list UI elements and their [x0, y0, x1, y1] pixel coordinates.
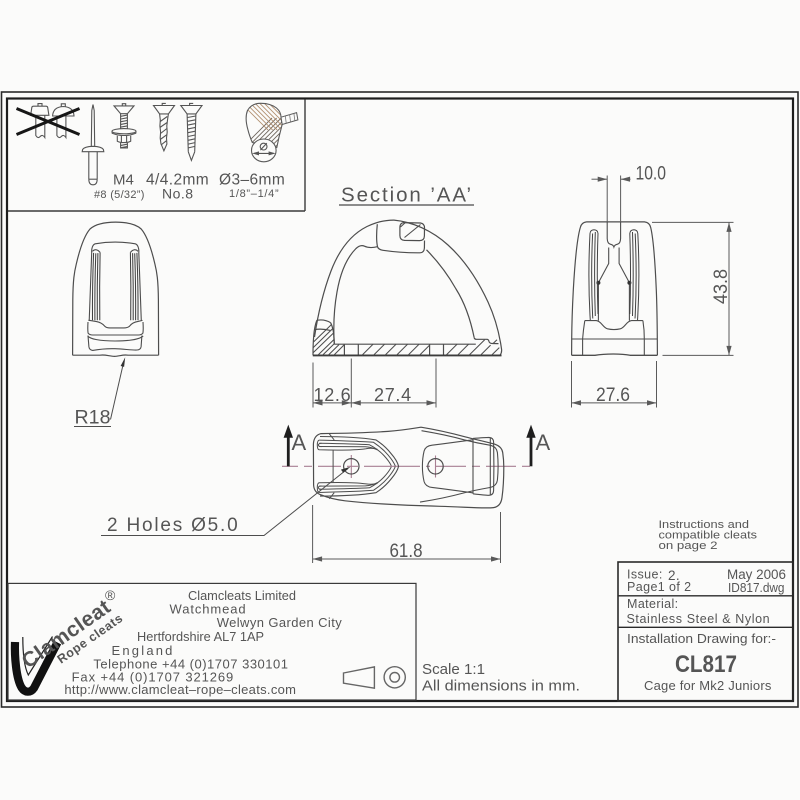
svg-text:M4: M4: [113, 172, 134, 189]
svg-text:ID817.dwg: ID817.dwg: [728, 581, 785, 595]
svg-text:Ø3–6mm: Ø3–6mm: [219, 172, 285, 189]
svg-text:England: England: [112, 643, 175, 658]
svg-text:27.6: 27.6: [596, 385, 630, 406]
svg-text:A: A: [292, 430, 307, 455]
svg-text:R18: R18: [75, 408, 111, 429]
svg-text:May 2006: May 2006: [727, 567, 786, 582]
svg-text:12.6: 12.6: [314, 385, 352, 405]
svg-text:#8 (5/32”): #8 (5/32”): [94, 189, 145, 201]
svg-text:Material:: Material:: [627, 597, 679, 611]
svg-text:Cage for Mk2 Juniors: Cage for Mk2 Juniors: [644, 678, 772, 693]
svg-text:Hertfordshire AL7 1AP: Hertfordshire AL7 1AP: [137, 629, 264, 644]
svg-text:®: ®: [105, 587, 116, 603]
svg-text:http://www.clamcleat–rope–clea: http://www.clamcleat–rope–cleats.com: [64, 682, 296, 697]
svg-text:No.8: No.8: [162, 186, 194, 202]
svg-text:Section ’AA’: Section ’AA’: [341, 184, 471, 207]
svg-text:Scale 1:1: Scale 1:1: [422, 662, 485, 678]
svg-text:Installation Drawing for:-: Installation Drawing for:-: [627, 632, 776, 646]
svg-text:2 Holes Ø5.0: 2 Holes Ø5.0: [107, 515, 240, 536]
svg-text:All dimensions in mm.: All dimensions in mm.: [422, 678, 580, 694]
svg-text:10.0: 10.0: [636, 164, 667, 185]
svg-text:Stainless Steel & Nylon: Stainless Steel & Nylon: [627, 612, 771, 626]
svg-text:27.4: 27.4: [374, 385, 412, 405]
svg-text:43.8: 43.8: [710, 269, 732, 304]
svg-text:A: A: [536, 430, 551, 455]
svg-text:on page 2: on page 2: [659, 540, 718, 552]
svg-text:CL817: CL817: [675, 651, 737, 678]
svg-text:Page1 of 2: Page1 of 2: [627, 580, 691, 594]
svg-text:Welwyn Garden City: Welwyn Garden City: [217, 615, 343, 630]
svg-text:1/8”–1/4”: 1/8”–1/4”: [229, 188, 279, 200]
svg-text:61.8: 61.8: [390, 541, 423, 562]
